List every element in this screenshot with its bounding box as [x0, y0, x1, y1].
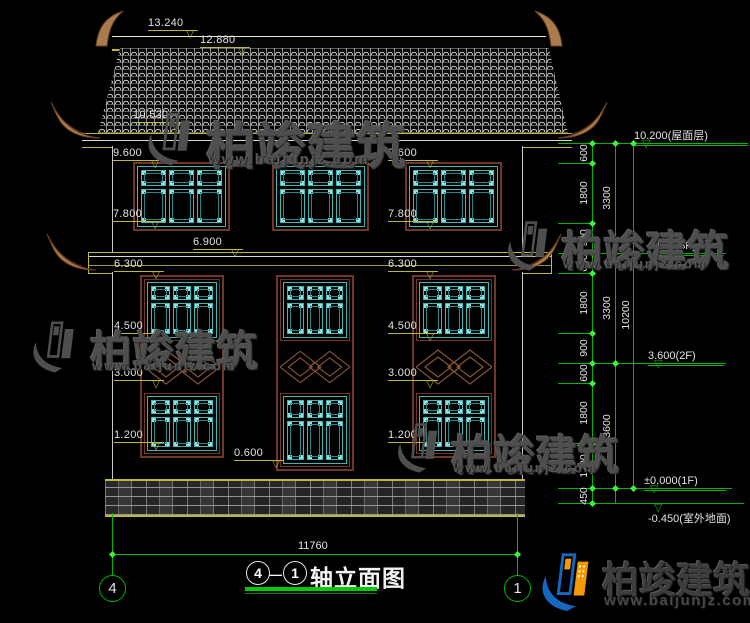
- elevation-label: 12.880▽: [200, 35, 250, 48]
- window-assembly-center: [276, 275, 354, 471]
- dim-text: 1800: [578, 173, 590, 213]
- elevation-label: 6.300▽: [388, 259, 438, 272]
- roof-finial-right-icon: [530, 8, 568, 48]
- elevation-label: 7.800▽: [113, 209, 163, 222]
- dim-chain-line-3: [633, 143, 634, 488]
- diamond-ornament-panel: [280, 345, 350, 389]
- elevation-label: 7.800▽: [388, 209, 438, 222]
- dim-text: 600: [578, 353, 590, 393]
- title-axis-bubble-1: 1: [283, 561, 307, 585]
- title-underline: [245, 587, 377, 591]
- dim-text: 600: [578, 133, 590, 173]
- watermark-logo-icon: [503, 214, 559, 274]
- footer-logo-icon: [538, 546, 600, 614]
- level-marker: 10.200(屋面层)▽: [634, 126, 748, 146]
- overall-dim-text: 11760: [298, 540, 328, 552]
- grid-leader-left: [112, 513, 113, 576]
- eave-corner-upper-left-icon: [48, 96, 102, 142]
- stone-base: [105, 479, 525, 517]
- dim-text: 1800: [578, 283, 590, 323]
- dim-text: 3300: [601, 178, 613, 218]
- grid-bubble-1: 1: [504, 575, 531, 602]
- level-marker: 3.600(2F)▽: [648, 346, 724, 366]
- eave-corner-lower-left-icon: [44, 228, 98, 274]
- roof-finial-left-icon: [90, 8, 128, 48]
- title-axis-bubble-4: 4: [246, 561, 270, 585]
- elevation-label: 1.200▽: [114, 430, 164, 443]
- grid-bubble-4: 4: [99, 575, 126, 602]
- elevation-label: 6.300▽: [114, 259, 164, 272]
- cad-elevation-drawing: 13.240▽ 12.880▽ 10.530▽ 9.600▽ 7.800▽ 6.…: [0, 0, 750, 623]
- watermark-logo-icon: [28, 314, 86, 376]
- elevation-label: 13.240▽: [148, 18, 198, 31]
- elevation-label: 4.500▽: [388, 321, 438, 334]
- title-underline-thin: [245, 593, 377, 594]
- dim-text: 3300: [601, 288, 613, 328]
- elevation-label: 0.600▽: [234, 448, 284, 461]
- title-separator: —: [269, 567, 282, 582]
- watermark-logo-icon: [393, 416, 449, 476]
- elevation-label: 6.900▽: [193, 237, 243, 250]
- level-marker: ±0.000(1F)▽: [644, 471, 726, 491]
- watermark-logo-icon: [142, 105, 204, 169]
- overall-dim-line: [112, 554, 517, 555]
- dim-text: 10200: [620, 295, 632, 335]
- elevation-label: 3.000▽: [388, 368, 438, 381]
- grid-leader-right: [517, 513, 518, 576]
- level-line: [592, 503, 744, 504]
